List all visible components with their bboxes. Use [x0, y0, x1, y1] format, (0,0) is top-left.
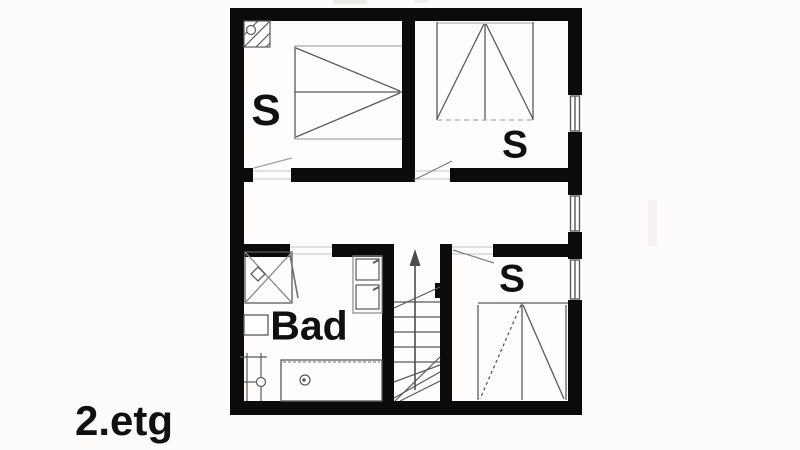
- floor-plan: S S S Bad 2.etg: [0, 0, 800, 450]
- washbasin-icon: [244, 315, 268, 335]
- chimney-icon: [244, 21, 270, 47]
- room-label-bedroom-top-left: S: [251, 89, 280, 133]
- floor-title: 2.etg: [75, 400, 173, 442]
- window-icons: [568, 95, 582, 300]
- room-label-bedroom-bottom-right: S: [499, 260, 525, 299]
- floor-plan-drawing: [0, 0, 800, 450]
- room-label-bathroom: Bad: [270, 306, 347, 347]
- room-label-bedroom-top-right: S: [502, 126, 528, 165]
